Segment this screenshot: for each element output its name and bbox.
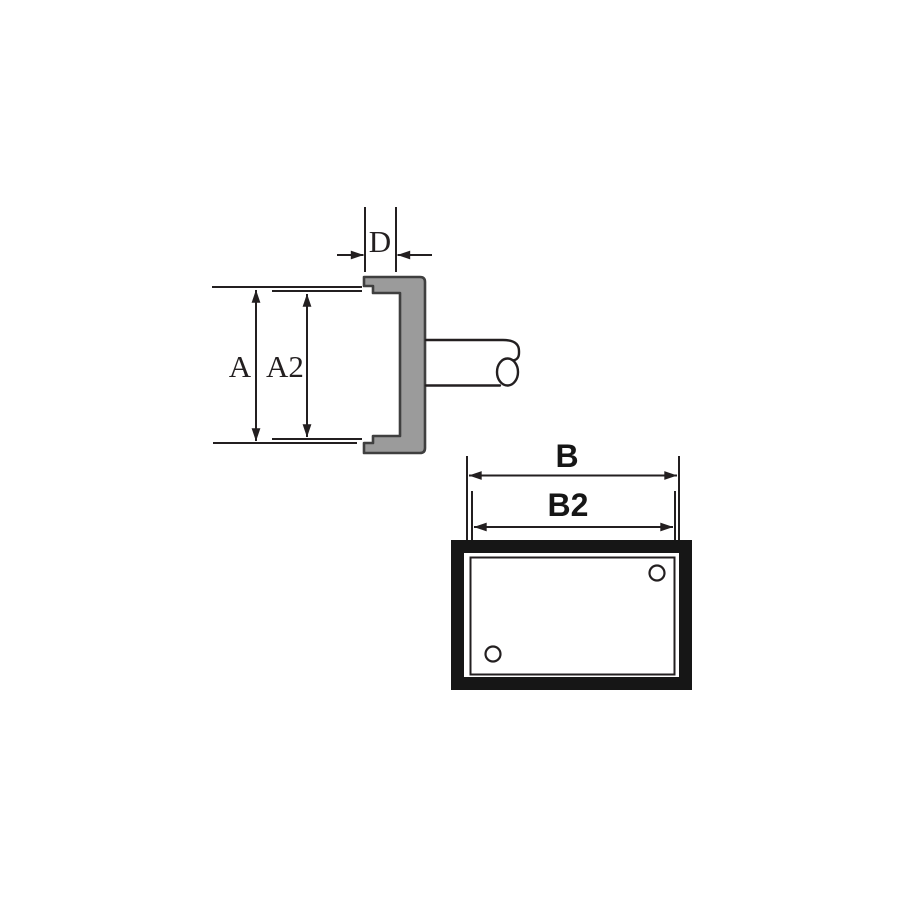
dim-a2-label: A2 (266, 349, 304, 384)
side-view-drawing: D A A2 (212, 207, 519, 453)
dim-b-label: B (555, 438, 578, 474)
dim-a-label: A (229, 349, 252, 384)
technical-diagram: D A A2 B B2 (0, 0, 900, 900)
shaft-outline-top (426, 340, 519, 361)
tip-body-section (364, 277, 425, 453)
hole-top-right (650, 566, 665, 581)
hole-bottom-left (486, 647, 501, 662)
front-view-drawing: B B2 (451, 438, 692, 690)
dim-d-label: D (369, 224, 391, 259)
shaft-end-bulb (497, 359, 518, 386)
dim-b2-label: B2 (548, 487, 589, 523)
